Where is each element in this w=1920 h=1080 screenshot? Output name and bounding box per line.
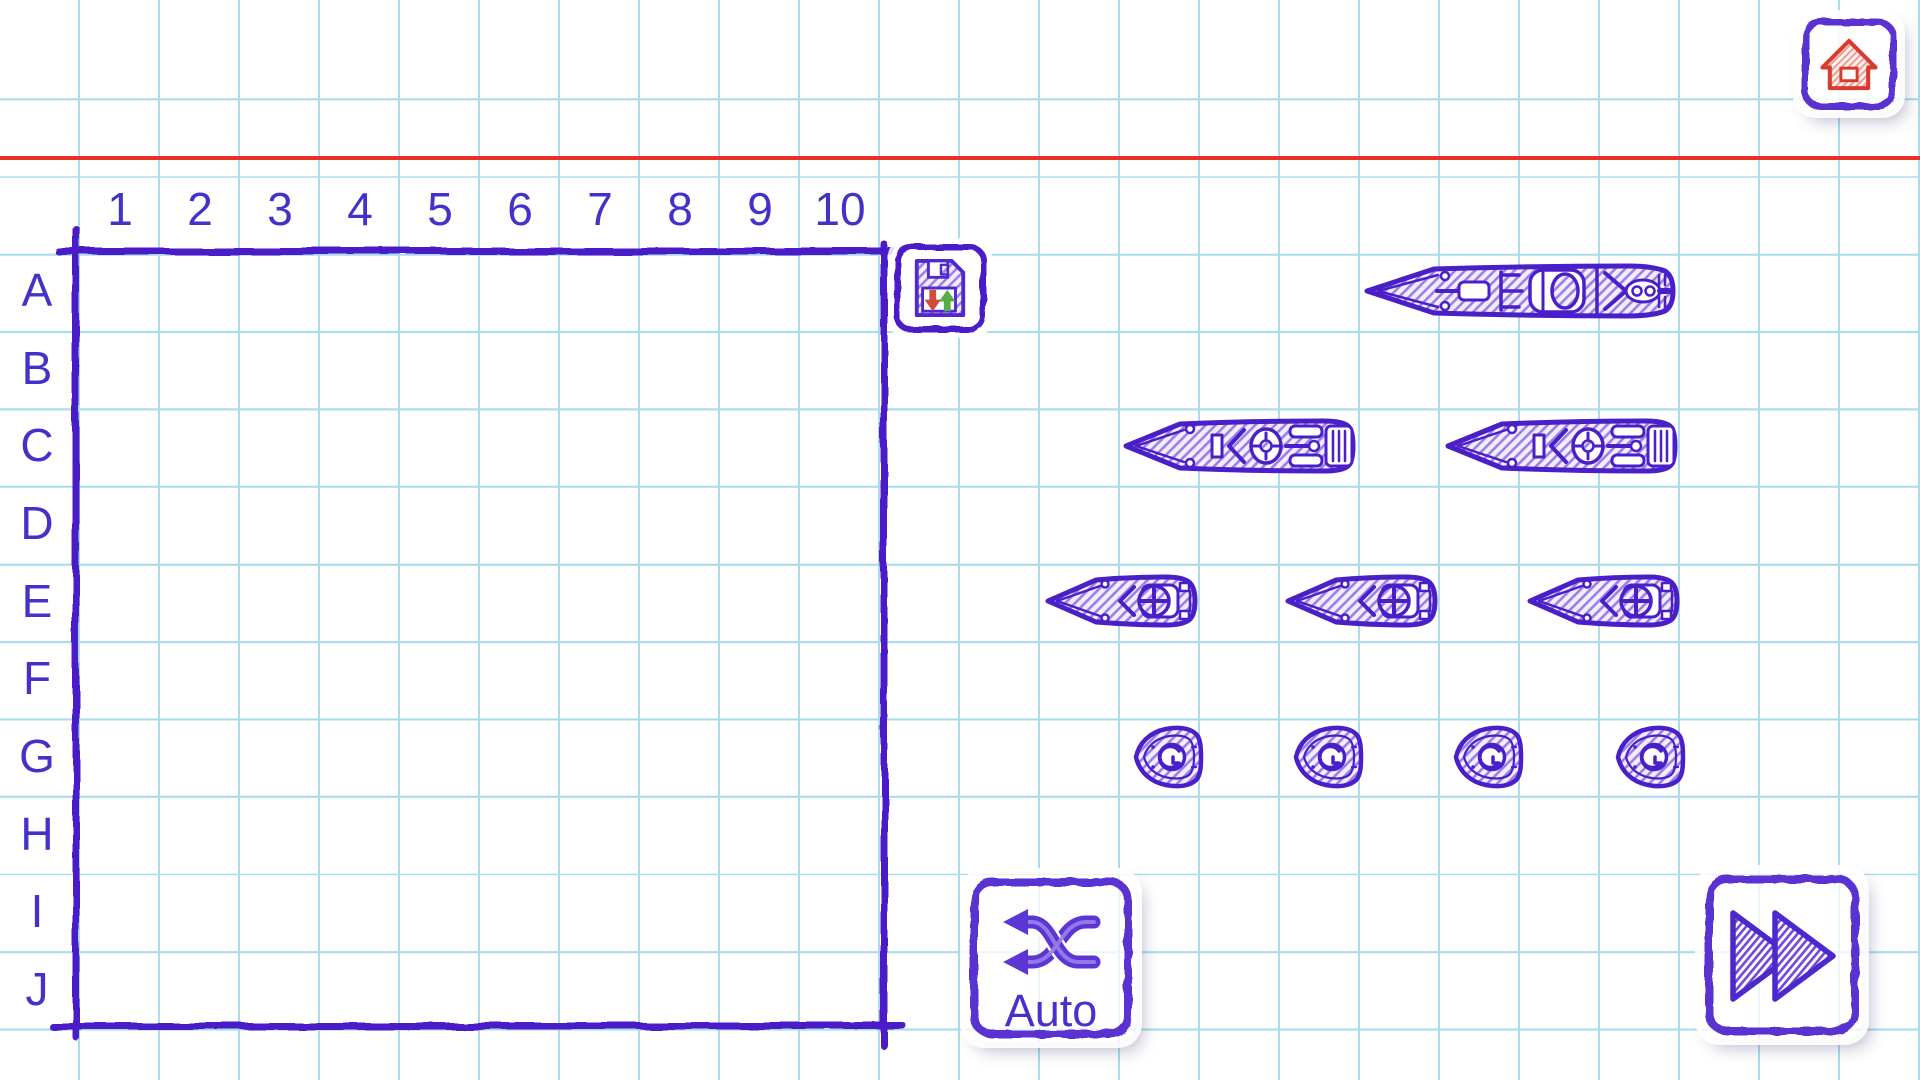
row-label: A — [4, 251, 70, 329]
auto-place-button[interactable]: Auto — [966, 874, 1136, 1042]
ship-submarine-1[interactable] — [1130, 720, 1206, 794]
graph-paper-background: { "board": { "column_labels": ["1","2","… — [0, 0, 1920, 1080]
home-icon — [1818, 35, 1880, 94]
shuffle-icon — [992, 898, 1110, 986]
fast-forward-icon — [1719, 897, 1845, 1013]
row-label: F — [4, 640, 70, 718]
save-floppy-icon — [910, 256, 970, 320]
ship-submarine-2[interactable] — [1290, 720, 1366, 794]
row-label: J — [4, 950, 70, 1028]
column-label: 4 — [320, 170, 400, 248]
column-label: 1 — [80, 170, 160, 248]
save-button[interactable] — [892, 242, 988, 334]
column-labels: 12345678910 — [80, 170, 880, 248]
start-button[interactable] — [1701, 871, 1863, 1039]
auto-button-label: Auto — [1005, 988, 1098, 1033]
red-margin-line — [0, 156, 1920, 160]
home-button[interactable] — [1799, 16, 1899, 112]
row-label: B — [4, 329, 70, 407]
row-label: H — [4, 795, 70, 873]
column-label: 7 — [560, 170, 640, 248]
ship-submarine-4[interactable] — [1612, 720, 1688, 794]
row-label: E — [4, 562, 70, 640]
column-label: 3 — [240, 170, 320, 248]
ship-destroyer-1[interactable] — [1042, 565, 1202, 637]
ship-battleship[interactable] — [1360, 255, 1684, 327]
board-grid[interactable] — [78, 251, 878, 1026]
column-label: 8 — [640, 170, 720, 248]
column-label: 2 — [160, 170, 240, 248]
row-label: C — [4, 406, 70, 484]
column-label: 10 — [800, 170, 880, 248]
row-labels: ABCDEFGHIJ — [4, 251, 70, 1028]
row-label: G — [4, 717, 70, 795]
ship-destroyer-3[interactable] — [1524, 565, 1684, 637]
ship-submarine-3[interactable] — [1450, 720, 1526, 794]
row-label: I — [4, 873, 70, 951]
column-label: 9 — [720, 170, 800, 248]
column-label: 5 — [400, 170, 480, 248]
row-label: D — [4, 484, 70, 562]
column-label: 6 — [480, 170, 560, 248]
ship-cruiser-1[interactable] — [1120, 410, 1360, 482]
ship-destroyer-2[interactable] — [1282, 565, 1442, 637]
ship-cruiser-2[interactable] — [1442, 410, 1682, 482]
